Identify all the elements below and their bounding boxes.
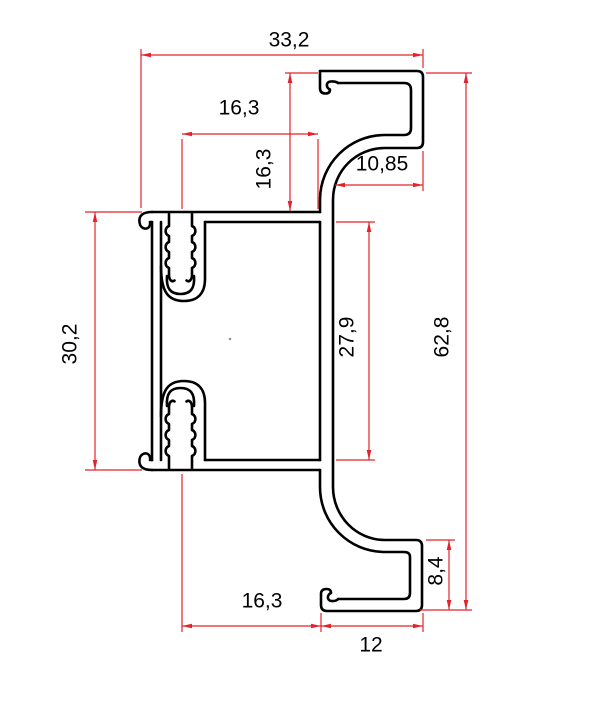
arrow-top-width-right (413, 53, 423, 58)
dim-label-bottom-slot-to-wall: 16,3 (242, 590, 283, 613)
upper-slot-left-wall (166, 214, 175, 281)
dim-label-total-height: 62,8 (431, 317, 454, 358)
arrow-body-height-bottom (93, 460, 98, 470)
dim-label-top-slot-to-wall: 16,3 (219, 97, 260, 120)
arrow-bottom-hook-top (447, 540, 452, 550)
stray-dot (229, 338, 231, 340)
arrow-inner-height-bottom (367, 450, 372, 460)
arrow-inner-height-top (367, 222, 372, 232)
arrow-hook-width-right (413, 183, 423, 188)
arrow-bottom-flange-left (321, 624, 331, 629)
arrow-flange-height-top (288, 73, 293, 83)
arrow-top-width-left (141, 53, 151, 58)
top-flange-lip (320, 71, 338, 94)
arrow-bottom-flange-right (413, 624, 423, 629)
dim-label-body-inner-height: 27,9 (336, 317, 359, 358)
arrow-total-height-bottom (464, 600, 469, 610)
dim-label-bottom-hook-height: 8,4 (425, 556, 448, 586)
arrow-body-height-top (93, 212, 98, 222)
arrow-flange-height-bottom (288, 201, 293, 211)
bottom-plate-left-lip (139, 453, 152, 470)
arrow-top-slot-right (308, 132, 318, 137)
lower-slot-right-wall (187, 401, 196, 468)
arrow-bottom-slot-right (311, 624, 321, 629)
dim-label-top-flange-height: 16,3 (253, 149, 276, 190)
arrow-bottom-hook-bottom (447, 600, 452, 610)
dimension-lines (85, 49, 472, 632)
top-plate-left-lip (139, 212, 152, 229)
dimension-labels: 33,2 16,3 16,3 10,85 30,2 27,9 62,8 8,4 … (59, 29, 454, 657)
drawing-canvas: 33,2 16,3 16,3 10,85 30,2 27,9 62,8 8,4 … (0, 0, 608, 706)
dim-label-top-width: 33,2 (269, 29, 310, 52)
arrow-bottom-slot-left (182, 624, 192, 629)
arrow-top-slot-left (182, 132, 192, 137)
dimension-arrowheads (93, 53, 469, 629)
dim-label-top-hook-width: 10,85 (356, 153, 409, 176)
lower-slot-left-wall (166, 401, 175, 468)
dim-label-body-height: 30,2 (59, 324, 82, 365)
dim-label-bottom-flange-width: 12 (359, 634, 382, 657)
upper-slot-right-wall (187, 214, 196, 281)
arrow-total-height-top (464, 73, 469, 83)
profile-technical-drawing: 33,2 16,3 16,3 10,85 30,2 27,9 62,8 8,4 … (0, 0, 608, 706)
